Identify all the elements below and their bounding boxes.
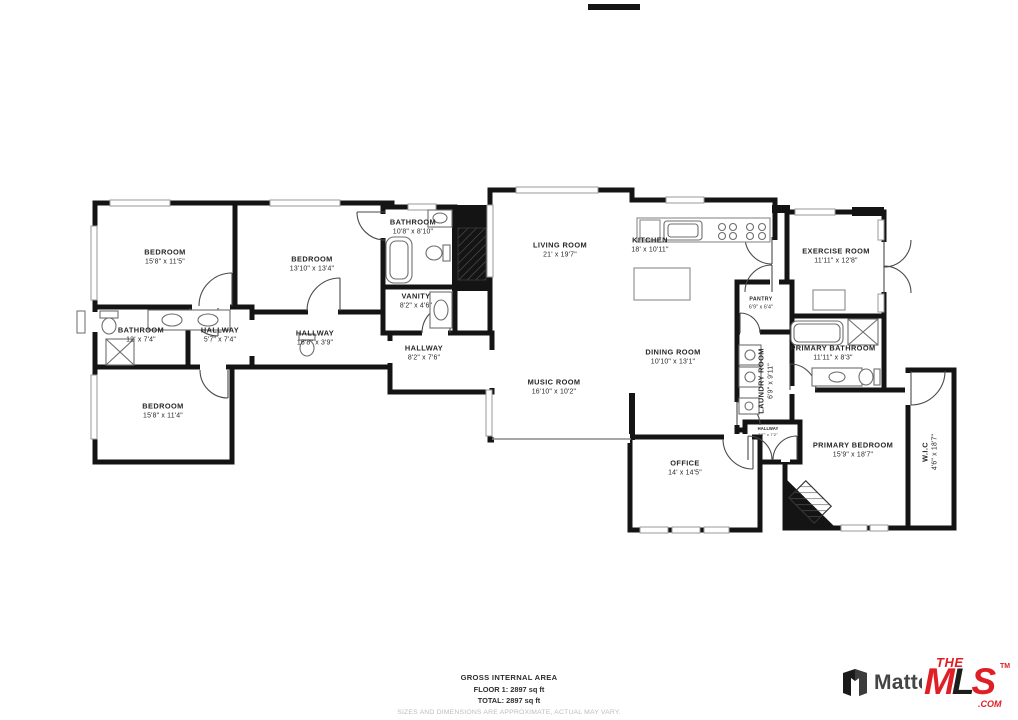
walls: [95, 190, 954, 530]
floorplan-page: BEDROOM15'8" x 11'5" BEDROOM13'10" x 13'…: [0, 0, 1018, 720]
floor-area: FLOOR 1: 2897 sq ft: [397, 684, 621, 695]
kitchen-island: [634, 268, 690, 300]
gross-area-title: GROSS INTERNAL AREA: [397, 672, 621, 684]
mls-trademark: TM: [1000, 663, 1010, 670]
entry-door-leaf: [77, 311, 85, 333]
disclaimer: SIZES AND DIMENSIONS ARE APPROXIMATE, AC…: [397, 708, 621, 719]
themls-logo: THE MLS TM .COM: [922, 655, 1014, 715]
chimney-hatch: [458, 228, 486, 280]
floorplan-drawing: [0, 0, 1018, 720]
mls-main-text: MLS: [924, 661, 993, 703]
total-area: TOTAL: 2897 sq ft: [397, 695, 621, 706]
matterport-icon: [842, 668, 868, 698]
glass-wall: [492, 434, 631, 443]
top-artifact: [588, 4, 640, 10]
area-summary: GROSS INTERNAL AREA FLOOR 1: 2897 sq ft …: [397, 672, 621, 718]
mls-com-text: .COM: [978, 699, 1002, 709]
